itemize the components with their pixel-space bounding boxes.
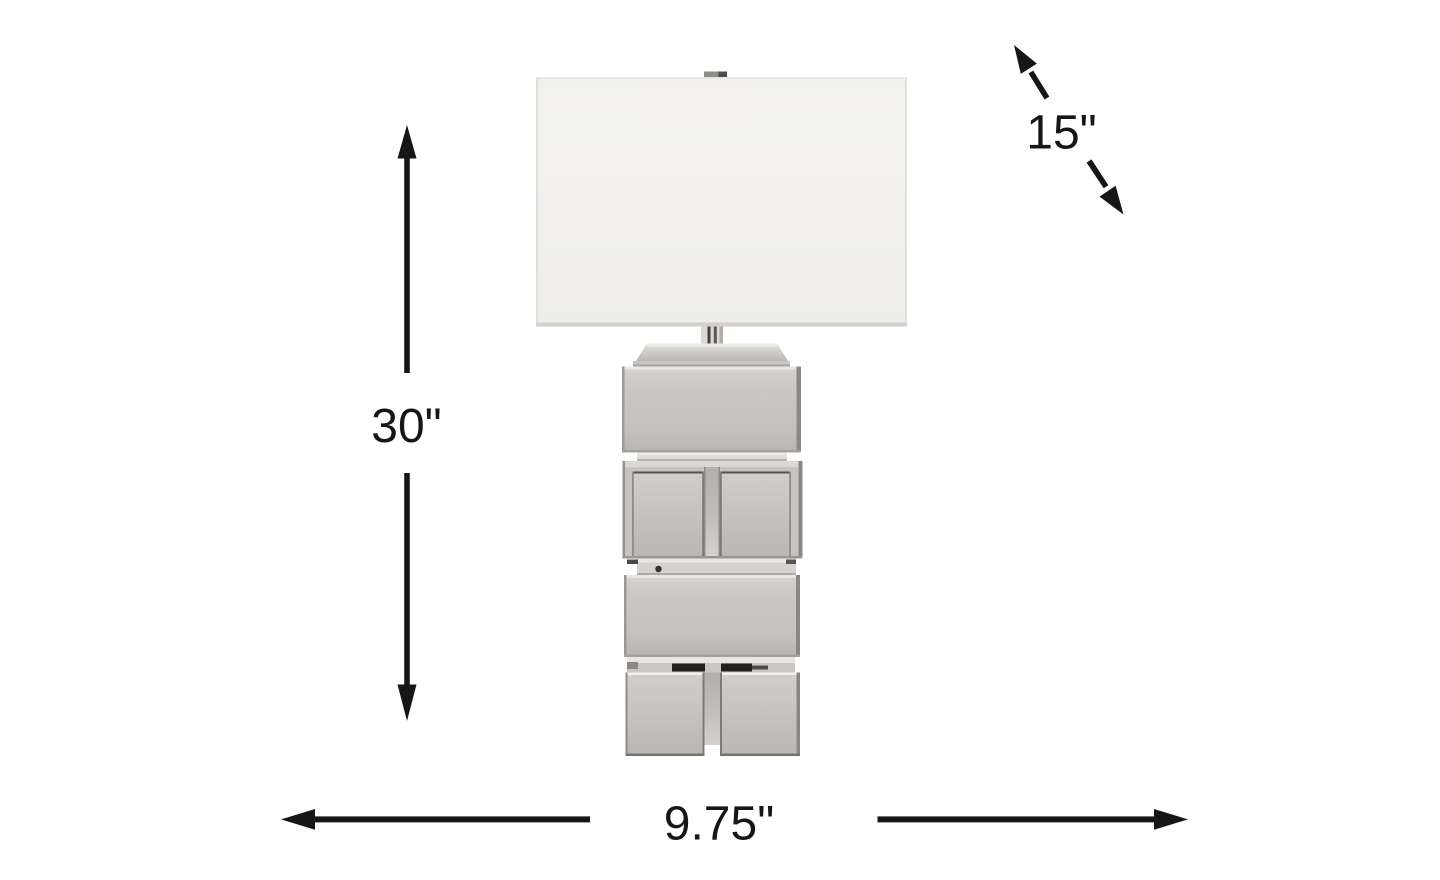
svg-text:30": 30" [371,400,441,453]
svg-text:9.75": 9.75" [664,798,774,851]
svg-text:15": 15" [1026,107,1096,160]
